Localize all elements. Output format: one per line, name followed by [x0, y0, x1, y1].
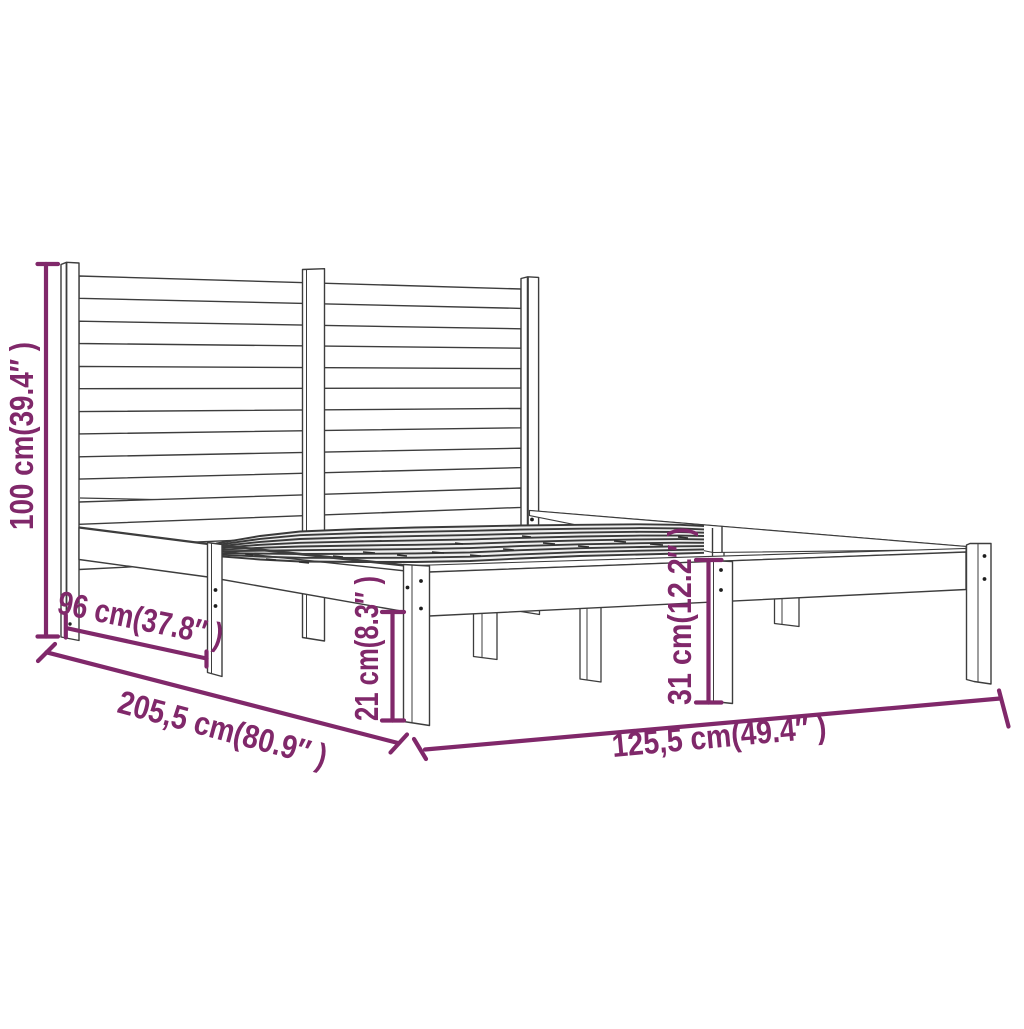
svg-text:100 cm(39.4″ ): 100 cm(39.4″ ) — [3, 342, 40, 530]
svg-text:31 cm(12.2″ ): 31 cm(12.2″ ) — [661, 527, 698, 705]
svg-text:21 cm(8.3″ ): 21 cm(8.3″ ) — [348, 576, 385, 721]
